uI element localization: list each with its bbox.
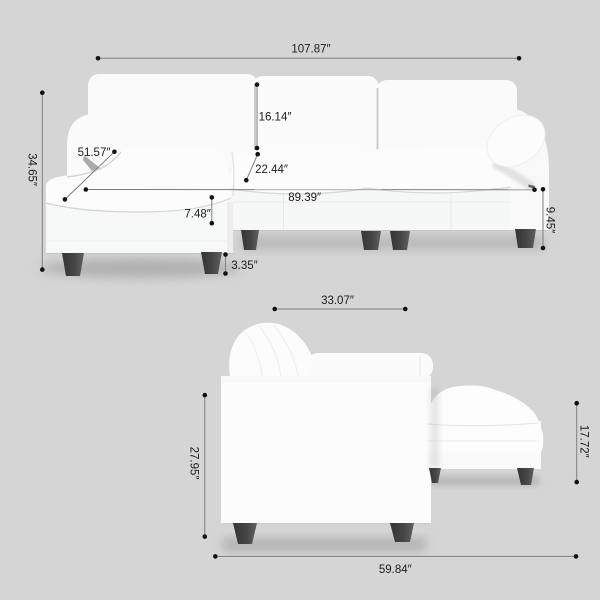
svg-text:22.44″: 22.44″ xyxy=(255,164,288,176)
svg-text:59.84″: 59.84″ xyxy=(379,564,412,576)
svg-text:34.65″: 34.65″ xyxy=(26,153,38,186)
svg-text:27.95″: 27.95″ xyxy=(188,447,200,480)
svg-text:51.57″: 51.57″ xyxy=(78,147,111,159)
svg-text:89.39″: 89.39″ xyxy=(288,192,321,204)
svg-text:9.45″: 9.45″ xyxy=(544,207,556,233)
svg-text:16.14″: 16.14″ xyxy=(259,112,292,124)
svg-text:7.48″: 7.48″ xyxy=(184,209,210,221)
svg-text:107.87″: 107.87″ xyxy=(291,44,330,56)
svg-text:33.07″: 33.07″ xyxy=(321,295,354,307)
svg-text:3.35″: 3.35″ xyxy=(231,260,257,272)
svg-text:17.72″: 17.72″ xyxy=(578,425,590,458)
